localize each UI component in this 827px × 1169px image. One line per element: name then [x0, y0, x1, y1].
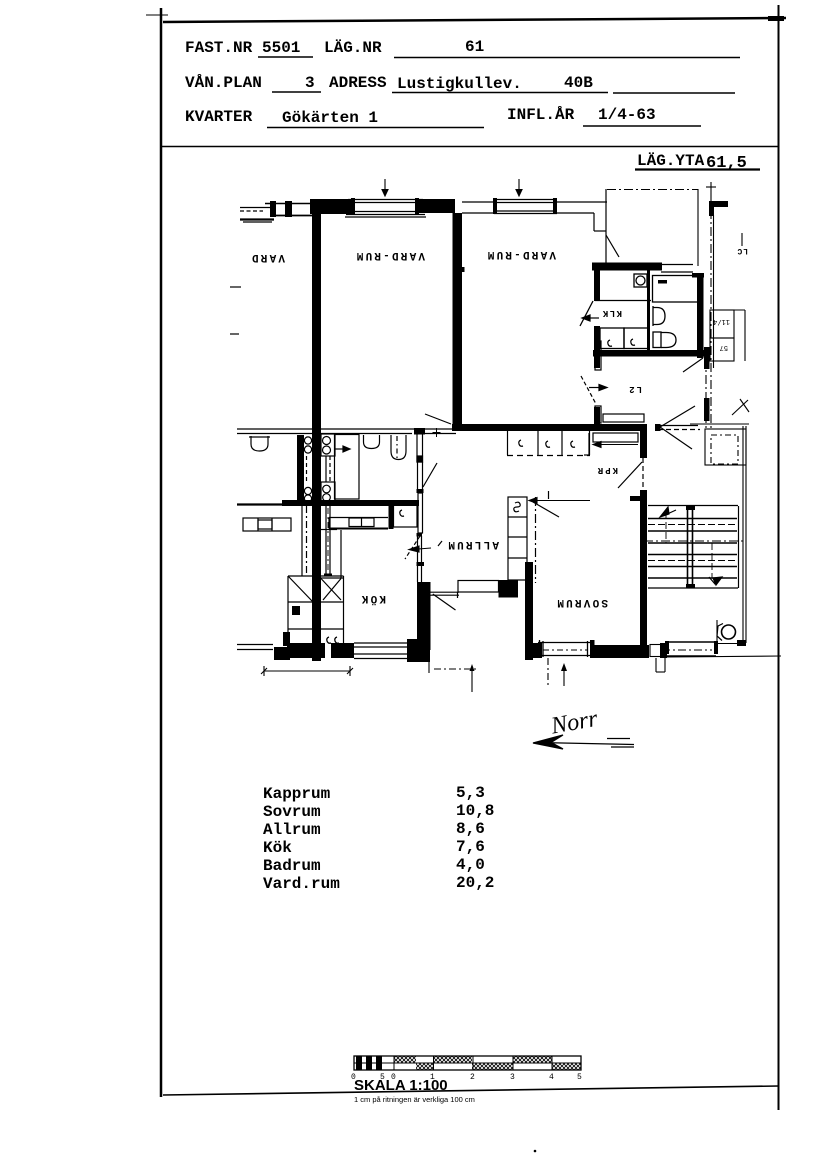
svg-text:5,3: 5,3 [456, 784, 485, 802]
svg-text:FAST.NR: FAST.NR [185, 39, 253, 57]
svg-text:20,2: 20,2 [456, 874, 494, 892]
svg-text:Vard.rum: Vard.rum [263, 875, 340, 893]
svg-text:8,6: 8,6 [456, 820, 485, 838]
svg-text:VÅN.PLAN: VÅN.PLAN [185, 73, 262, 92]
svg-text:Badrum: Badrum [263, 857, 321, 875]
svg-text:VARD-RUM: VARD-RUM [486, 248, 556, 260]
svg-text:Gökärten 1: Gökärten 1 [282, 109, 378, 127]
svg-text:61: 61 [465, 38, 484, 56]
svg-text:Allrum: Allrum [263, 821, 321, 839]
svg-text:KLK: KLK [601, 308, 622, 318]
svg-text:KPR: KPR [596, 465, 618, 475]
svg-text:Sovrum: Sovrum [263, 803, 321, 821]
svg-text:KVARTER: KVARTER [185, 108, 253, 126]
svg-text:LC: LC [736, 246, 748, 255]
svg-text:1 cm på ritningen är verkliga: 1 cm på ritningen är verkliga 100 cm [354, 1095, 475, 1104]
svg-text:10,8: 10,8 [456, 802, 494, 820]
svg-text:3: 3 [305, 74, 315, 92]
svg-text:7,6: 7,6 [456, 838, 485, 856]
svg-text:57: 57 [720, 343, 728, 351]
svg-text:SOVRUM: SOVRUM [555, 596, 608, 608]
svg-text:VARD: VARD [250, 251, 285, 263]
svg-text:L2: L2 [627, 384, 642, 394]
svg-text:4: 4 [549, 1073, 554, 1082]
svg-text:VARD-RUM: VARD-RUM [355, 249, 425, 261]
svg-text:3: 3 [510, 1073, 515, 1082]
svg-text:LÄG.NR: LÄG.NR [324, 38, 382, 57]
svg-text:INFL.ÅR: INFL.ÅR [507, 105, 575, 124]
svg-text:11/4: 11/4 [713, 317, 730, 325]
svg-text:4,0: 4,0 [456, 856, 485, 874]
svg-text:KÖK: KÖK [360, 592, 386, 605]
svg-text:ALLRUM: ALLRUM [446, 538, 499, 550]
svg-text:LÄG.YTA: LÄG.YTA [637, 151, 705, 170]
svg-text:2: 2 [470, 1073, 475, 1082]
svg-text:40B: 40B [564, 74, 593, 92]
svg-text:Lustigkullev.: Lustigkullev. [397, 75, 522, 93]
svg-text:SKALA 1:100: SKALA 1:100 [354, 1077, 448, 1094]
svg-text:Kök: Kök [263, 839, 292, 857]
svg-text:5501: 5501 [262, 39, 300, 57]
svg-text:ADRESS: ADRESS [329, 74, 387, 92]
svg-text:1/4-63: 1/4-63 [598, 106, 656, 124]
svg-text:5: 5 [577, 1073, 582, 1082]
svg-text:Kapprum: Kapprum [263, 785, 331, 803]
